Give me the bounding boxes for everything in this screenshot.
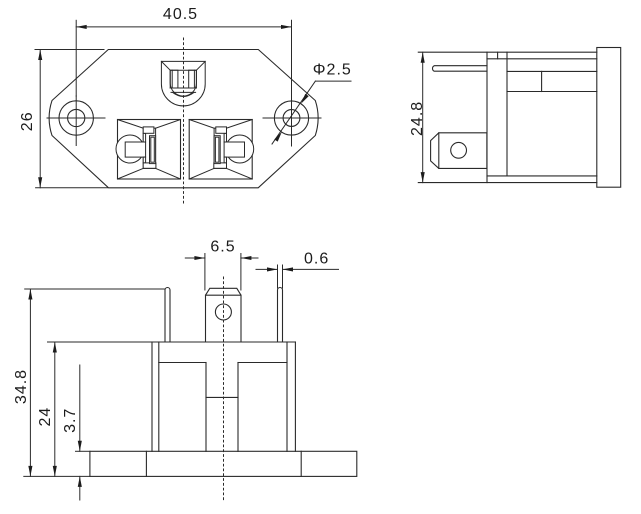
svg-text:3.7: 3.7 xyxy=(62,408,79,433)
svg-text:6.5: 6.5 xyxy=(210,238,235,255)
svg-text:24.8: 24.8 xyxy=(409,101,426,136)
svg-text:0.6: 0.6 xyxy=(304,250,329,267)
svg-text:34.8: 34.8 xyxy=(13,369,30,404)
svg-text:Φ2.5: Φ2.5 xyxy=(313,62,352,79)
svg-text:40.5: 40.5 xyxy=(163,6,198,23)
svg-text:26: 26 xyxy=(19,111,36,131)
svg-text:24: 24 xyxy=(37,407,54,427)
